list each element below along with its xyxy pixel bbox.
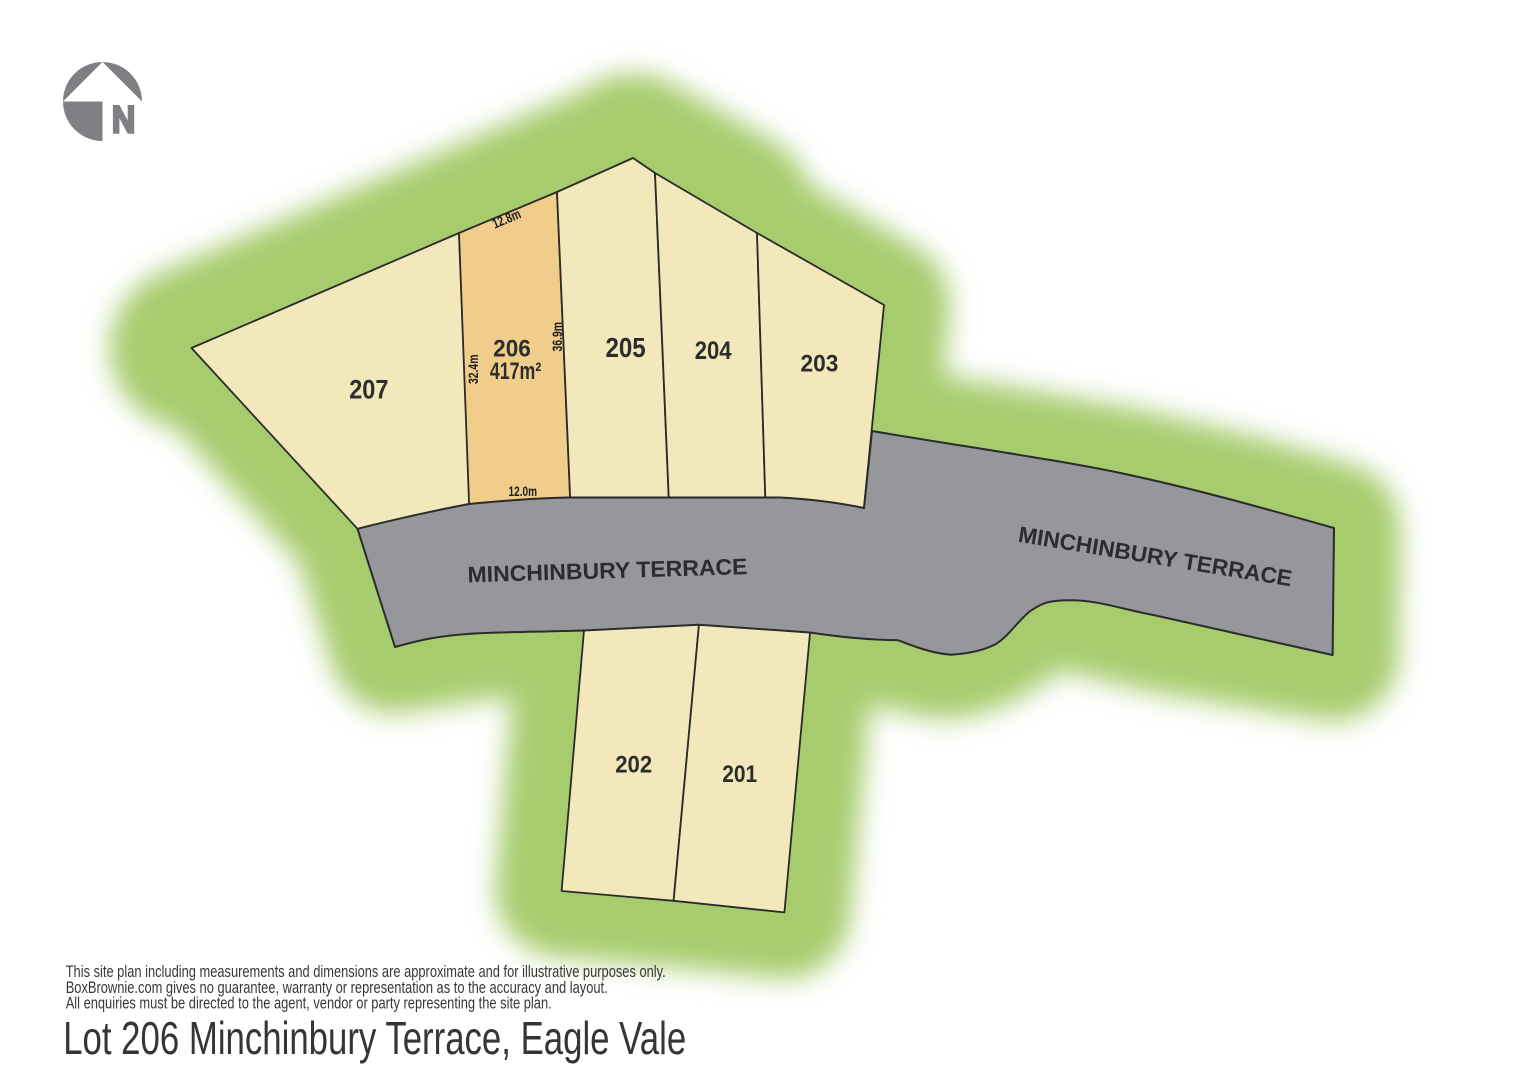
svg-text:203: 203 (801, 350, 839, 377)
svg-text:207: 207 (349, 374, 388, 404)
svg-text:205: 205 (606, 332, 646, 363)
svg-text:Lot 206 Minchinbury Terrace, E: Lot 206 Minchinbury Terrace, Eagle Vale (63, 1012, 686, 1064)
svg-text:417m²: 417m² (490, 358, 541, 385)
svg-text:204: 204 (695, 337, 732, 365)
svg-text:12.0m: 12.0m (509, 483, 538, 499)
svg-text:36.9m: 36.9m (549, 322, 565, 352)
svg-text:All enquiries must be directed: All enquiries must be directed to the ag… (66, 995, 552, 1013)
svg-text:32.4m: 32.4m (465, 355, 481, 385)
svg-text:202: 202 (615, 752, 652, 779)
svg-text:201: 201 (722, 761, 757, 788)
